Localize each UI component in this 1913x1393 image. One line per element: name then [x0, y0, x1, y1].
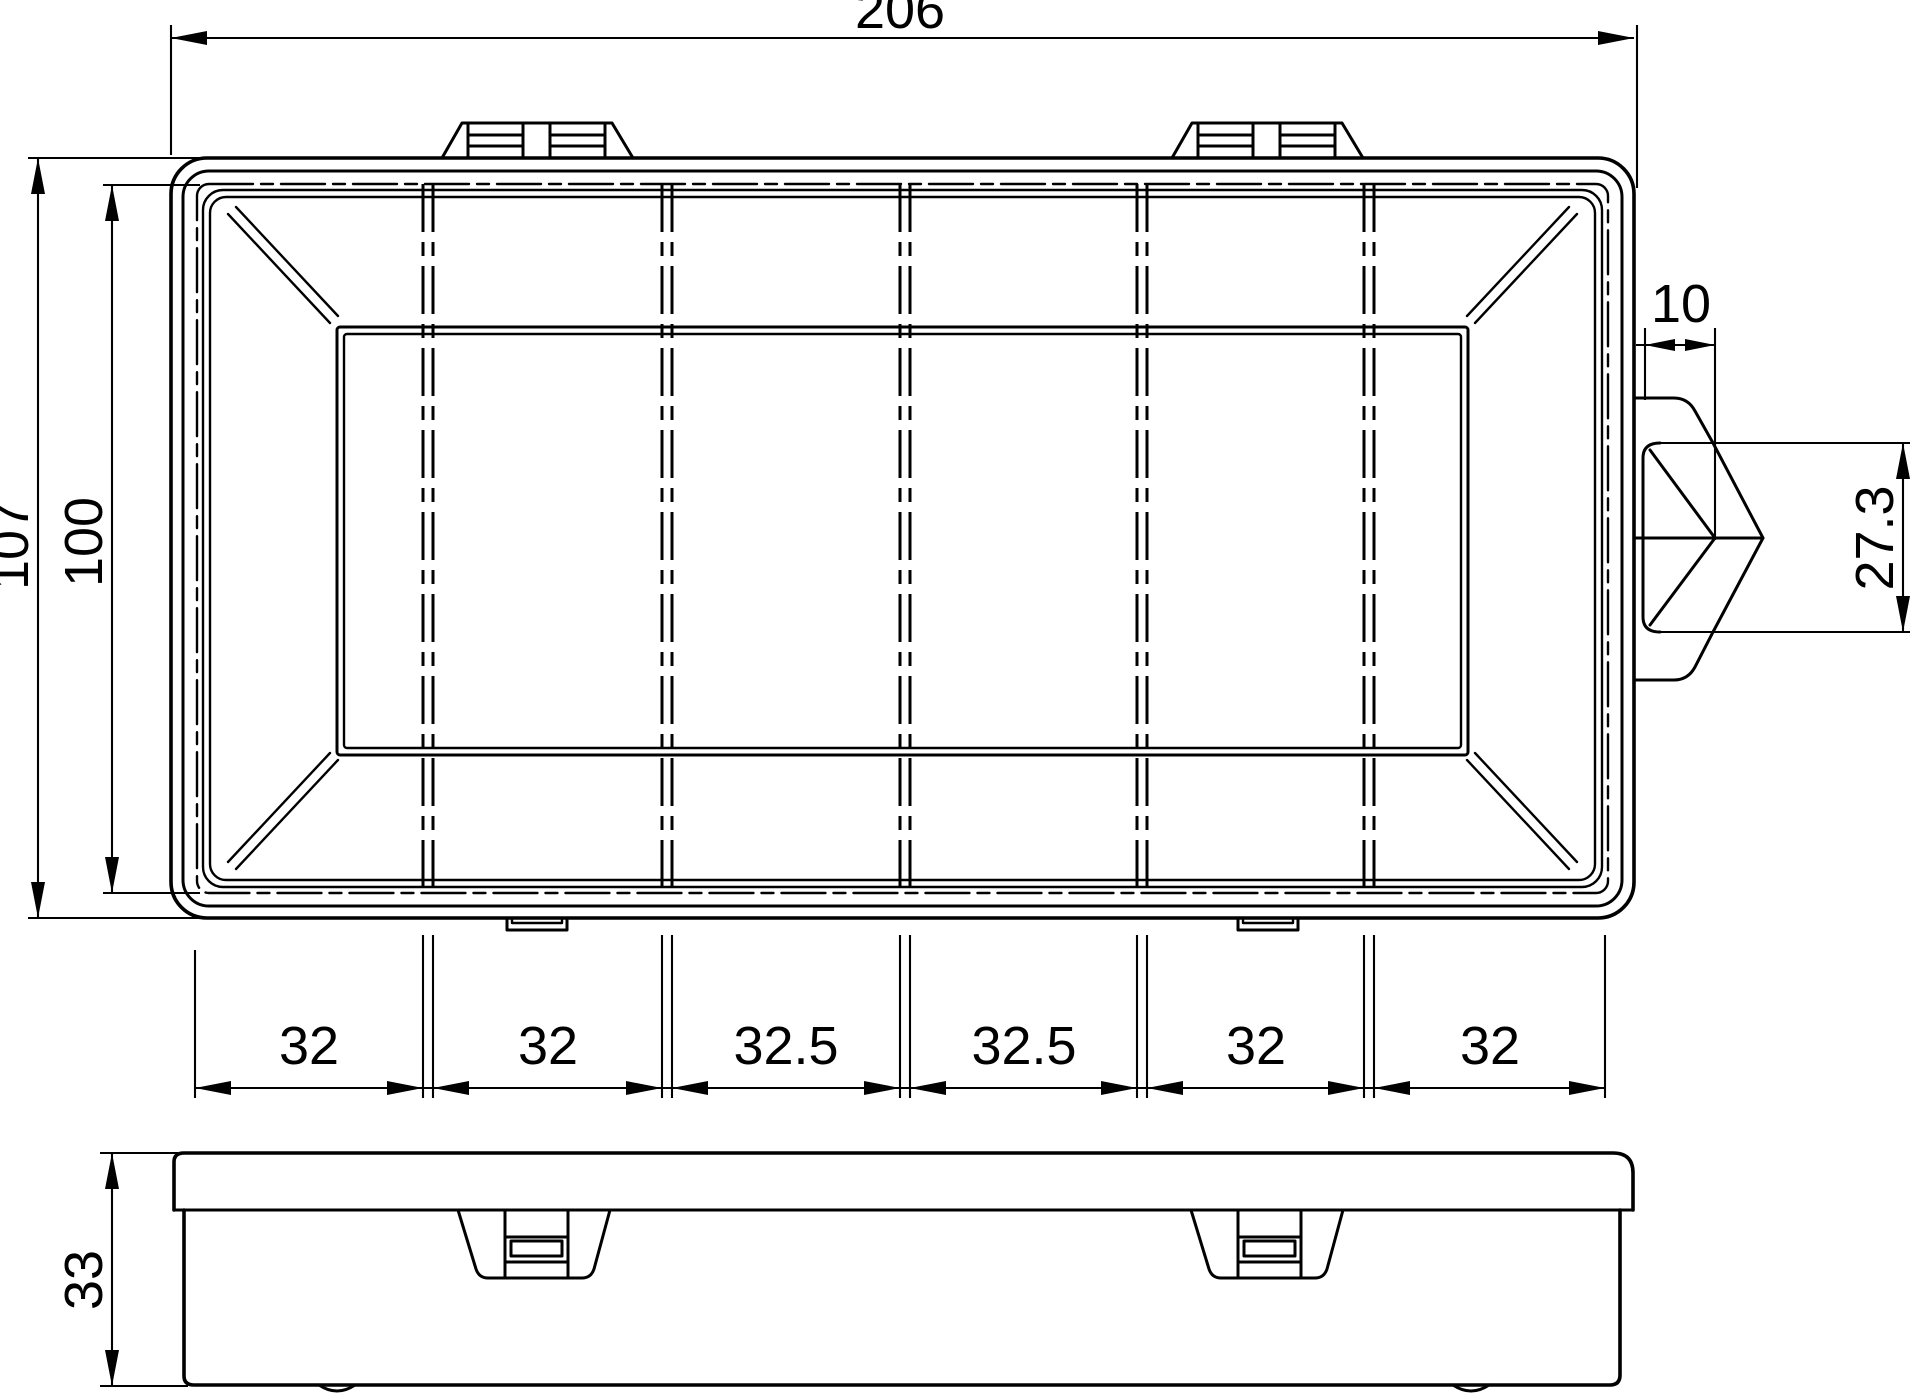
dim-label-comp-4: 32.5: [971, 1016, 1076, 1076]
arrowhead: [1896, 596, 1910, 632]
inner-wall-outer: [203, 190, 1602, 887]
gusset-bottom-right: [1467, 753, 1577, 869]
arrowhead: [31, 158, 45, 194]
clip-outline: [1191, 1210, 1343, 1278]
dim-label-33: 33: [54, 1250, 114, 1310]
lid-clip-left: [442, 123, 633, 158]
dim-label-comp-3: 32.5: [733, 1016, 838, 1076]
arrowhead: [1598, 31, 1634, 45]
top-view: [171, 123, 1763, 930]
arrowhead: [1101, 1081, 1137, 1095]
divider-1: [423, 184, 433, 893]
dim-label-107: 107: [0, 500, 40, 590]
clip-edges: [1198, 123, 1335, 158]
arrowhead: [1685, 339, 1715, 351]
arrowhead: [1645, 339, 1675, 351]
box-outline: [171, 158, 1634, 918]
compartment-dividers: [423, 184, 1374, 893]
arrowhead: [433, 1081, 469, 1095]
arrowhead: [864, 1081, 900, 1095]
gusset-bottom-left: [228, 753, 338, 869]
dim-side-height: 33: [54, 1153, 188, 1386]
dim-label-10: 10: [1651, 274, 1711, 334]
tray-floor: [337, 327, 1468, 755]
divider-2: [662, 184, 672, 893]
lid-clip-right: [1172, 123, 1363, 158]
dim-label-27-3: 27.3: [1845, 485, 1905, 590]
arrowhead: [1147, 1081, 1183, 1095]
divider-4: [1137, 184, 1147, 893]
arrowhead: [1896, 443, 1910, 479]
lid-profile: [174, 1153, 1633, 1210]
clip-slot: [1244, 1241, 1295, 1256]
arrowhead: [910, 1081, 946, 1095]
arrowhead: [105, 185, 119, 221]
inner-wall-inner: [210, 197, 1595, 880]
gusset-top-right: [1467, 207, 1577, 323]
dim-label-comp-5: 32: [1226, 1016, 1286, 1076]
arrowhead: [105, 1350, 119, 1386]
clip-ribs: [1198, 135, 1335, 146]
parting-centerline: [197, 184, 1608, 893]
side-clip-left: [458, 1210, 610, 1278]
dim-label-comp-6: 32: [1460, 1016, 1520, 1076]
extension-lines: [171, 25, 1637, 188]
arrowhead: [387, 1081, 423, 1095]
outer-edge: [171, 158, 1634, 918]
dim-compartment-chain: 32 32 32.5 32.5 32 32: [195, 935, 1605, 1098]
base-outline: [184, 1210, 1620, 1385]
arrowhead: [1374, 1081, 1410, 1095]
arrowhead: [672, 1081, 708, 1095]
clip-outline: [458, 1210, 610, 1278]
arrowhead: [626, 1081, 662, 1095]
extension-lines: [1645, 328, 1715, 540]
technical-drawing-page: 206 107 100 10: [0, 0, 1913, 1393]
base-profile: [184, 1210, 1620, 1391]
side-latch: [1634, 398, 1763, 680]
clip-edges: [505, 1210, 568, 1278]
divider-3: [900, 184, 910, 893]
arrowhead: [171, 31, 207, 45]
lid-outline: [174, 1153, 1633, 1210]
latch-back-bottom: [1634, 632, 1713, 680]
floor-outer: [337, 327, 1468, 755]
latch-back-top: [1634, 398, 1713, 443]
arrowhead: [1569, 1081, 1605, 1095]
dim-label-100: 100: [54, 497, 114, 587]
lid-edge: [183, 171, 1622, 906]
arrowhead: [195, 1081, 231, 1095]
clip-ribs: [468, 135, 605, 146]
extension-lines: [103, 185, 200, 893]
clip-edges: [468, 123, 605, 158]
arrowhead: [31, 882, 45, 918]
dim-label-comp-2: 32: [518, 1016, 578, 1076]
gusset-top-left: [228, 207, 338, 323]
dim-latch-width: 10: [1636, 274, 1715, 540]
dim-inner-depth: 100: [54, 185, 200, 893]
side-view: [174, 1153, 1633, 1391]
side-clip-right: [1191, 1210, 1343, 1278]
organizer-box-drawing: 206 107 100 10: [0, 0, 1913, 1393]
clip-slot: [511, 1241, 562, 1256]
divider-5: [1364, 184, 1374, 893]
dim-label-206: 206: [855, 0, 945, 40]
dim-label-comp-1: 32: [279, 1016, 339, 1076]
floor-inner: [344, 334, 1461, 748]
arrowhead: [105, 1153, 119, 1189]
arrowhead: [105, 857, 119, 893]
arrowhead: [1328, 1081, 1364, 1095]
clip-edges: [1238, 1210, 1301, 1278]
